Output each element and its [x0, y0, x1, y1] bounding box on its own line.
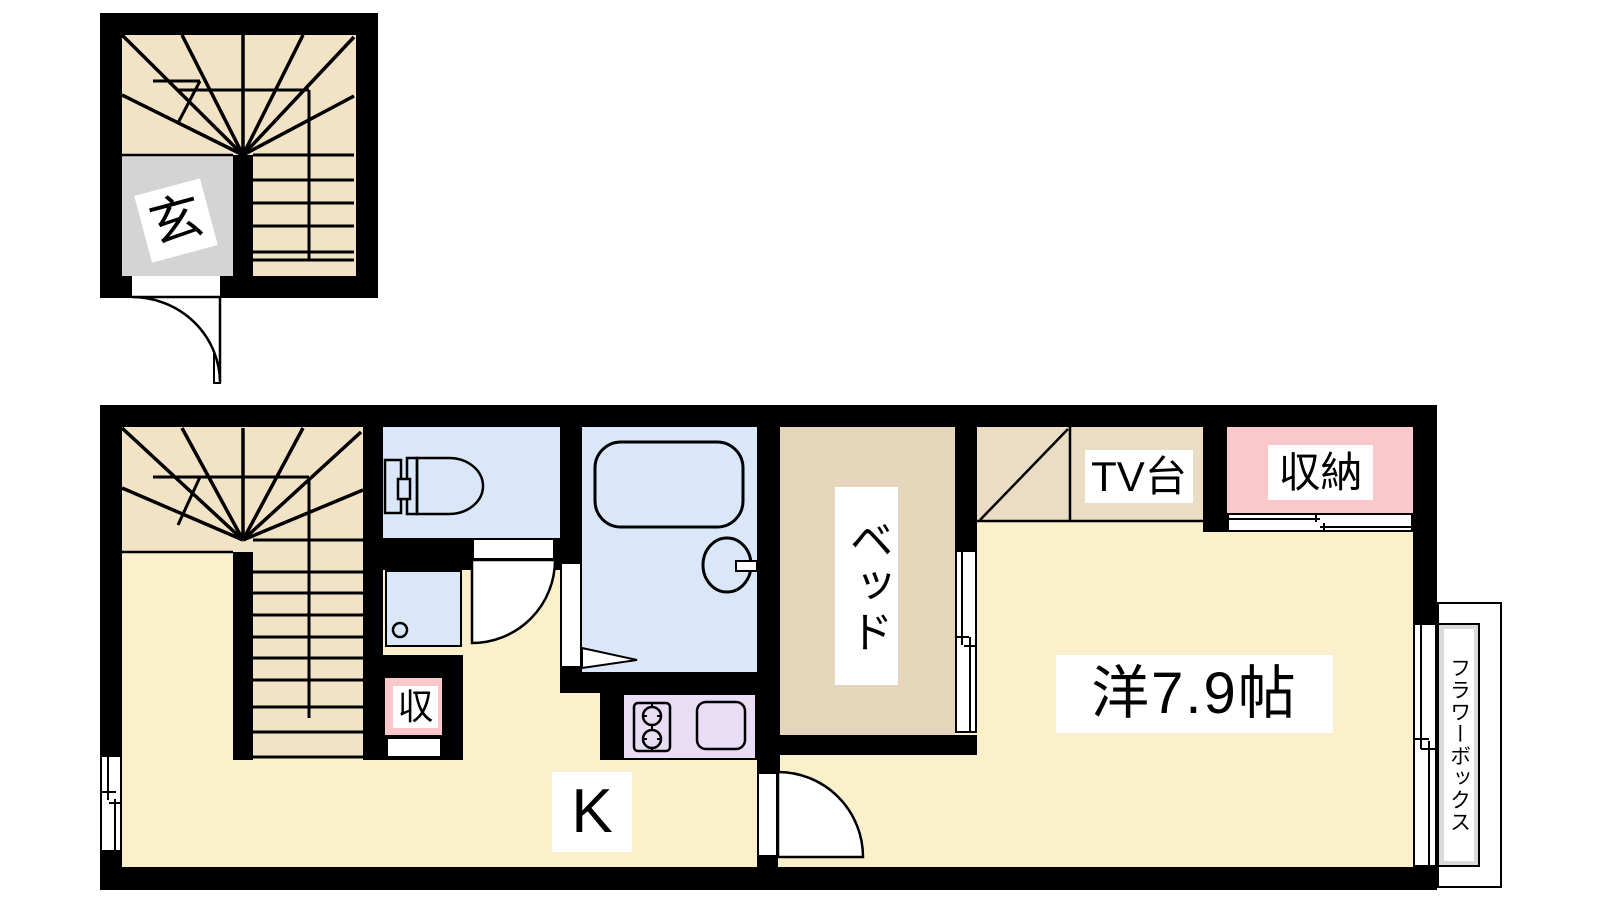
toilet-floor: [383, 427, 560, 538]
upper-entrance-door-leaf: [213, 296, 221, 384]
washroom-bottom-wall: [560, 672, 780, 693]
washroom-floor: [582, 538, 757, 672]
tv-stand-label: TV台: [1091, 456, 1187, 498]
stair-winder-floor: [122, 427, 363, 552]
closet-sliding-door: [1227, 513, 1413, 532]
kitchen-counter: [622, 693, 757, 760]
storage-label: 収: [397, 689, 433, 725]
stair-run-floor: [253, 552, 363, 757]
toilet-bath-divider-wall: [560, 427, 582, 538]
bed-left-wall: [757, 427, 780, 772]
kitchen-label: K: [571, 781, 612, 843]
washer-pan: [385, 570, 462, 647]
window-right: [1413, 623, 1437, 867]
bed-label-box: ベッド: [835, 487, 898, 685]
bathroom-floor: [582, 427, 757, 538]
upper-entrance-door-opening: [132, 276, 220, 298]
upper-divider-wall: [233, 155, 253, 276]
washroom-door-leaf: [560, 562, 582, 668]
tv-closet-divider-wall: [1203, 427, 1227, 532]
room-door-leaf: [757, 772, 778, 857]
kitchen-label-box: K: [552, 772, 632, 852]
closet-label-box: 収納: [1268, 445, 1373, 500]
flower-box-label: フラワーボックス: [1449, 657, 1470, 833]
kitchen-counter-stub-wall: [600, 693, 622, 760]
toilet-door-leaf: [472, 538, 555, 560]
entrance-label: 玄: [144, 189, 208, 253]
flower-box-label-box: フラワーボックス: [1444, 629, 1474, 861]
window-left: [100, 755, 122, 852]
bed-right-wall-top: [955, 427, 977, 550]
bed-sliding-door: [955, 550, 977, 733]
floorplan-canvas: 玄 K 洋7.9帖 ベッド TV台 収納 収 フラワーボックス: [0, 0, 1600, 900]
closet-label: 収納: [1278, 452, 1362, 494]
storage-door: [386, 737, 442, 758]
upper-entrance-door-arc: [132, 297, 220, 383]
stair-left-wall: [233, 552, 253, 760]
bed-label: ベッド: [845, 517, 889, 655]
toilet-bottom-wall-left: [383, 538, 472, 570]
bed-bottom-wall: [757, 735, 977, 755]
western-room-label: 洋7.9帖: [1091, 665, 1298, 723]
western-room-label-box: 洋7.9帖: [1056, 655, 1333, 733]
bed-left-wall-stub: [757, 857, 778, 867]
storage-label-box: 収: [393, 686, 438, 728]
tv-stand-label-box: TV台: [1085, 450, 1193, 503]
